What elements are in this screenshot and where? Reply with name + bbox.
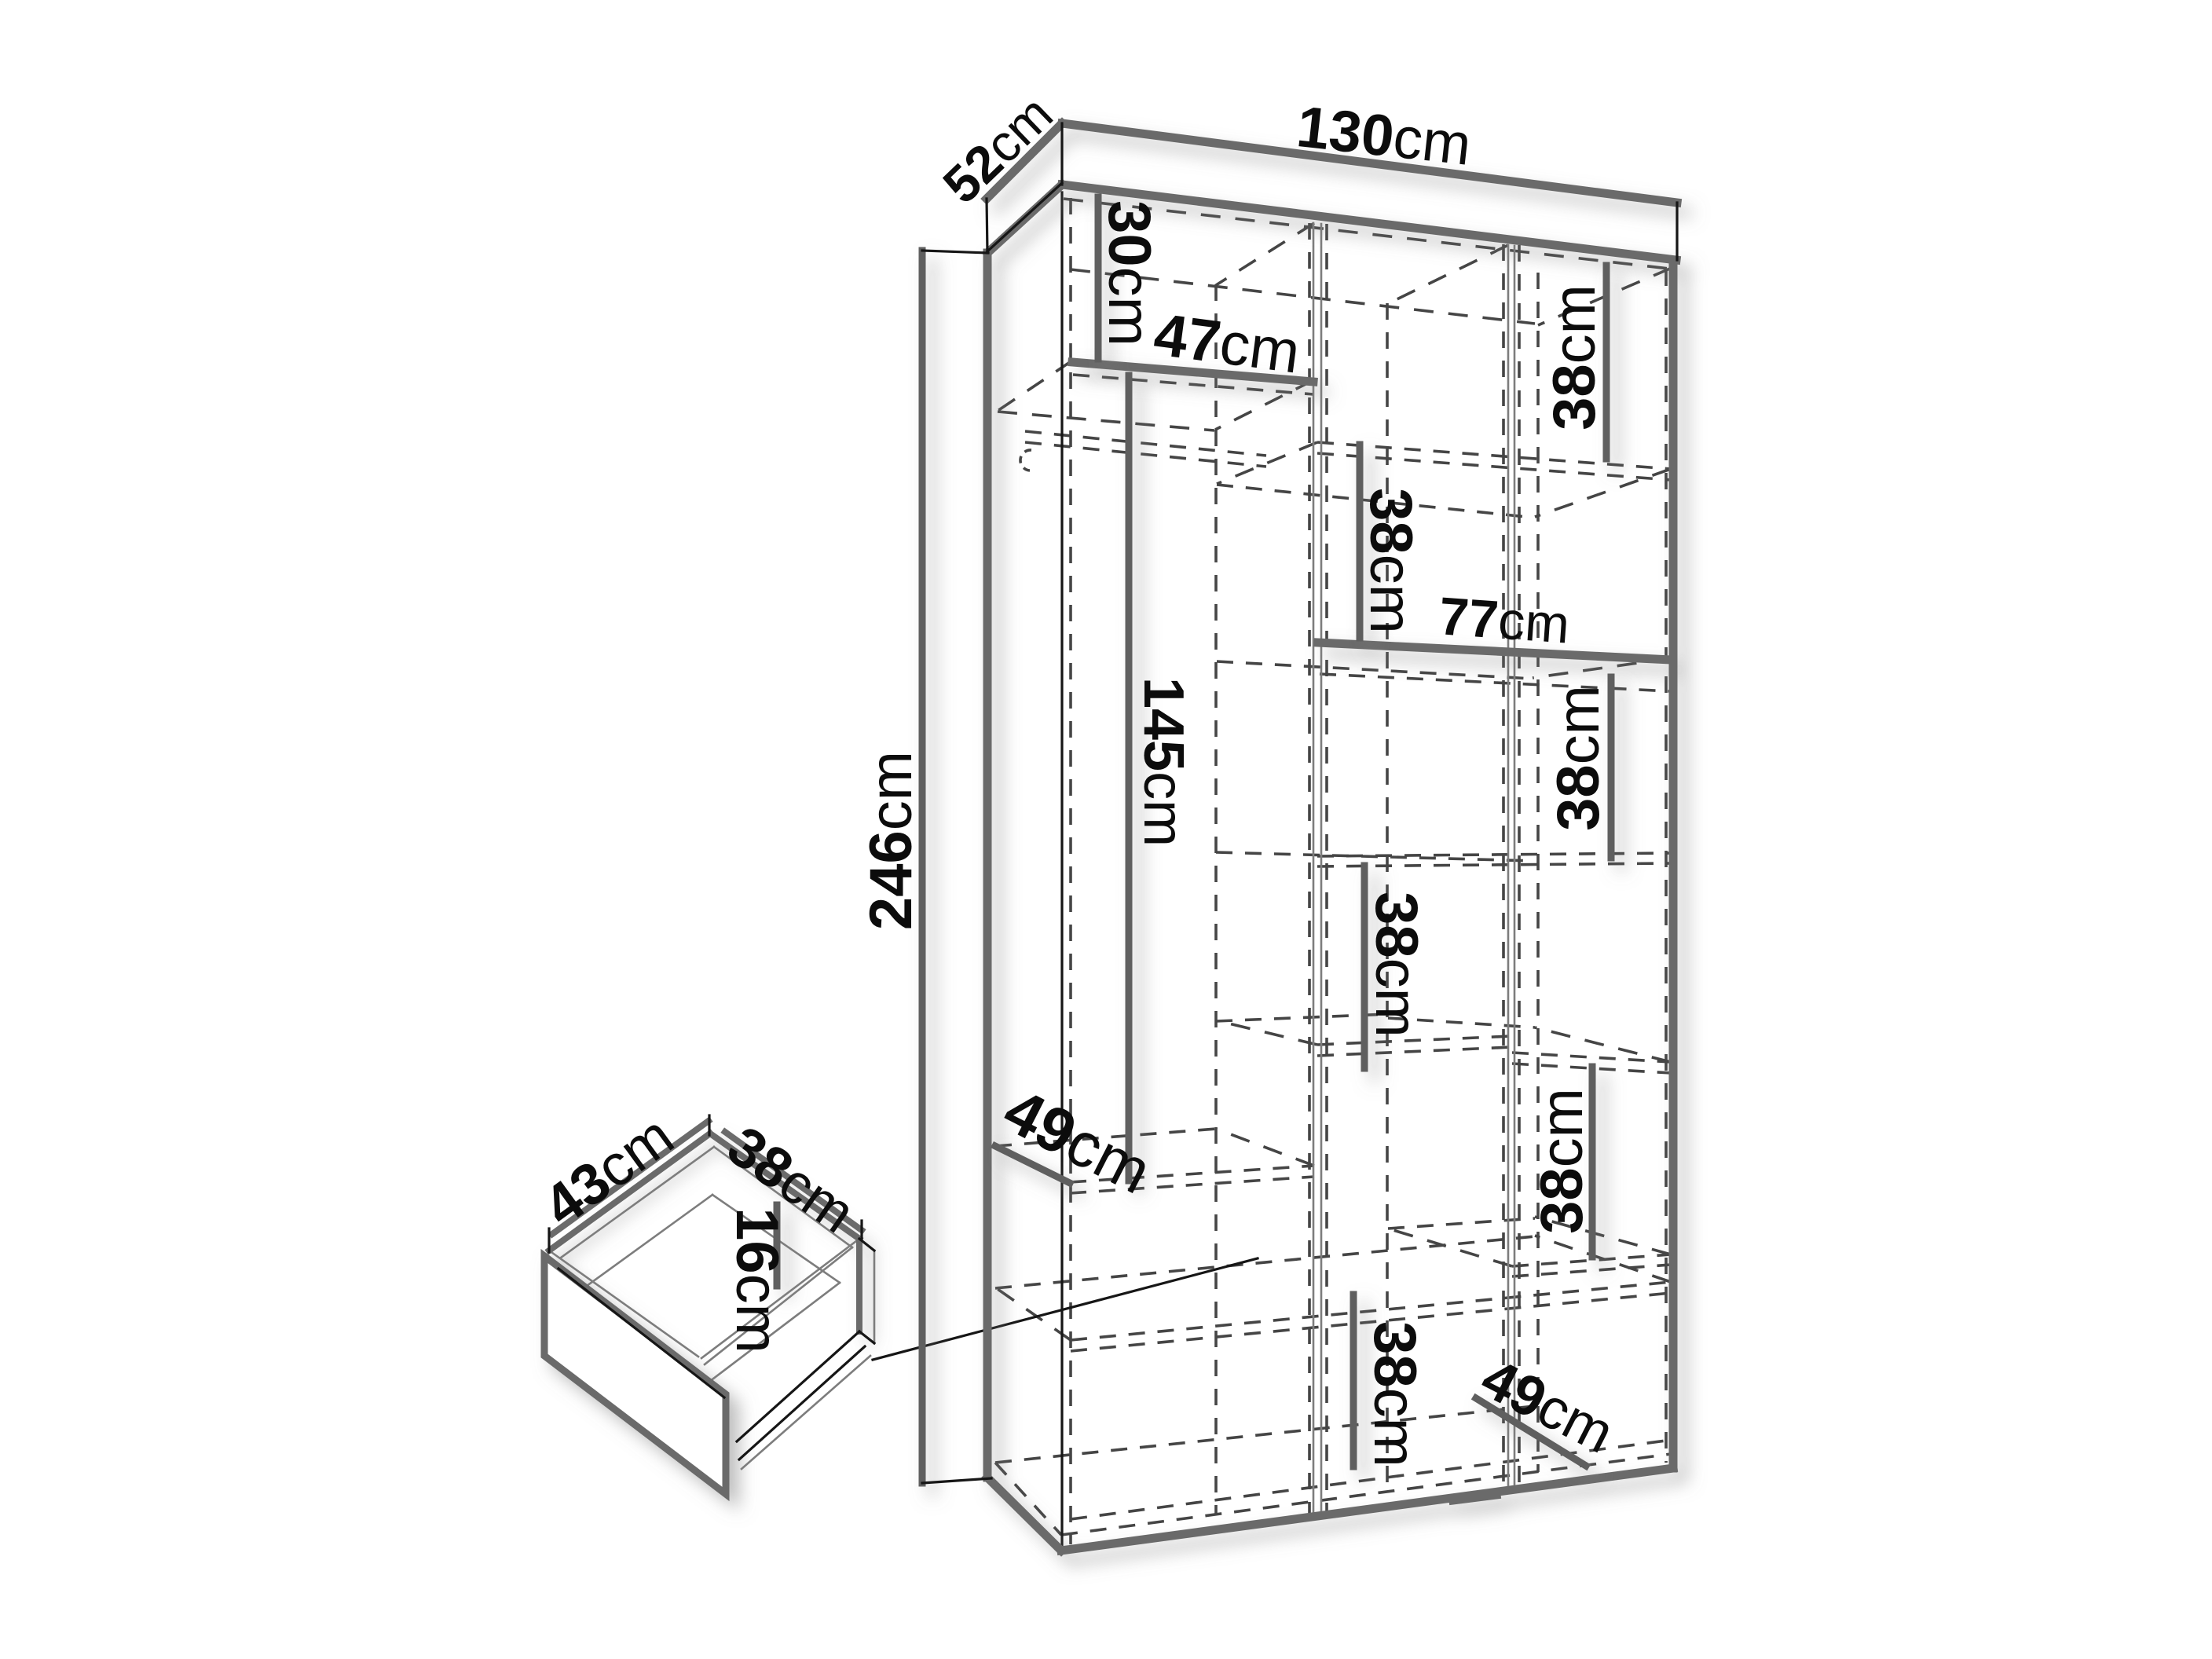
svg-text:38cm: 38cm [1358,488,1425,634]
svg-text:16cm: 16cm [724,1207,791,1353]
svg-text:38cm: 38cm [1529,1088,1595,1234]
svg-text:38cm: 38cm [1545,685,1612,831]
svg-text:145cm: 145cm [1132,677,1195,847]
svg-text:77cm: 77cm [1437,586,1571,654]
svg-text:246cm: 246cm [858,751,925,930]
svg-text:38cm: 38cm [1362,1321,1429,1467]
svg-text:38cm: 38cm [1541,284,1608,430]
svg-text:30cm: 30cm [1097,200,1163,346]
svg-text:38cm: 38cm [1364,892,1430,1038]
